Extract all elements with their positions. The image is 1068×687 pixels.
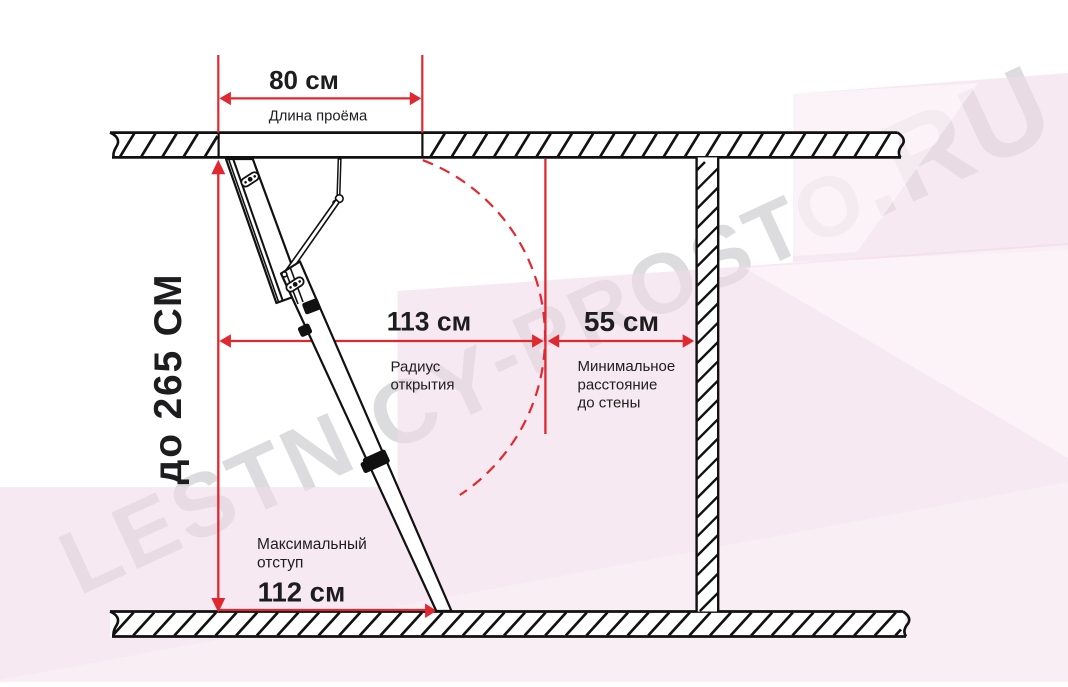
svg-text:112 см: 112 см (258, 576, 346, 607)
svg-text:55 см: 55 см (584, 306, 659, 337)
svg-text:отступ: отступ (257, 554, 303, 571)
svg-text:113 см: 113 см (387, 307, 471, 337)
svg-text:до стены: до стены (578, 395, 641, 412)
svg-text:80 см: 80 см (269, 65, 339, 95)
svg-text:Радиус: Радиус (391, 358, 441, 375)
svg-text:Длина проёма: Длина проёма (269, 108, 368, 124)
svg-text:Максимальный: Максимальный (257, 536, 367, 553)
svg-text:расстояние: расстояние (578, 376, 658, 393)
svg-text:до 265 СМ: до 265 СМ (147, 273, 190, 485)
svg-text:Минимальное: Минимальное (578, 358, 676, 375)
svg-text:открытия: открытия (391, 377, 455, 394)
